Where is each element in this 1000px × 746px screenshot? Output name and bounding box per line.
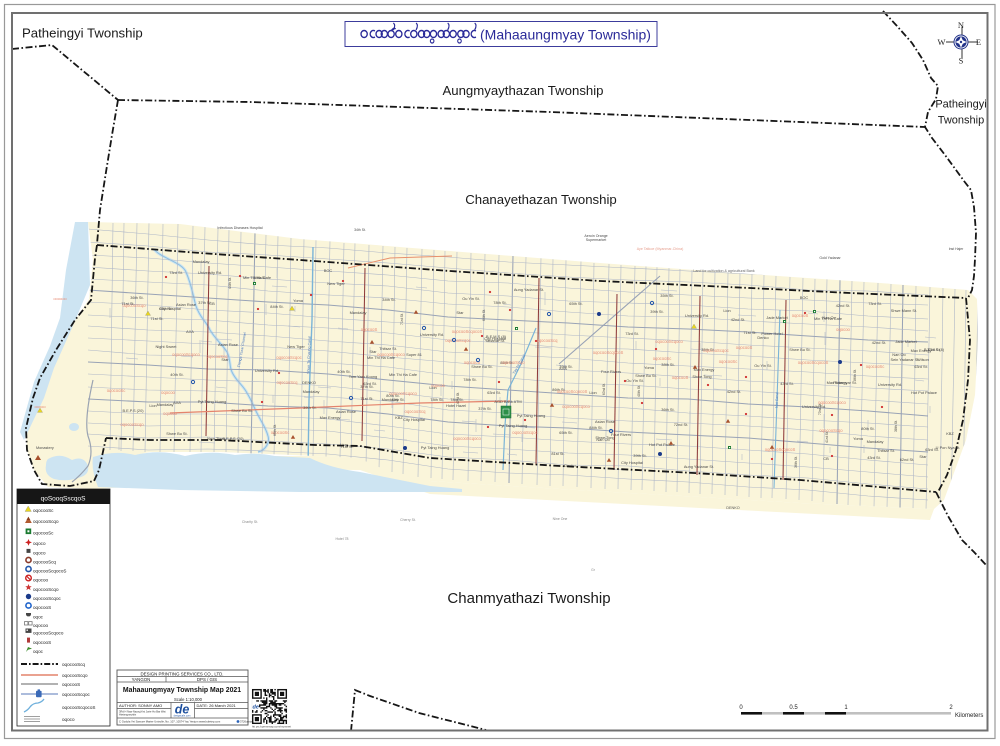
svg-text:63rd St.: 63rd St. — [487, 390, 501, 395]
svg-text:Chanayethazan Twonship: Chanayethazan Twonship — [465, 192, 617, 207]
svg-text:Supermarket: Supermarket — [586, 238, 607, 242]
svg-text:42nd St.: 42nd St. — [727, 389, 742, 394]
svg-text:oqocooS: oqocooS — [792, 313, 809, 318]
svg-text:44th St.: 44th St. — [391, 397, 404, 402]
svg-text:40th St.: 40th St. — [637, 385, 641, 397]
svg-text:oqoc: oqoc — [33, 649, 44, 654]
svg-text:65th St.: 65th St. — [273, 424, 277, 436]
svg-text:86th St.: 86th St. — [853, 369, 857, 381]
svg-text:oqocooScqo: oqocooScqo — [62, 673, 88, 678]
svg-text:80th St.: 80th St. — [861, 426, 874, 431]
svg-text:34th St.: 34th St. — [382, 297, 395, 302]
svg-text:Nine One: Nine One — [553, 517, 568, 521]
svg-text:DESIGN PRINTING SERVICES CO.,: DESIGN PRINTING SERVICES CO., LTD. — [140, 671, 223, 676]
svg-text:73rd St.: 73rd St. — [625, 331, 639, 336]
svg-text:New Tiger: New Tiger — [287, 344, 305, 349]
svg-text:DPS / GIS: DPS / GIS — [197, 677, 217, 682]
svg-text:63rd St.: 63rd St. — [914, 364, 928, 369]
svg-text:oqocooScqoco: oqocooScqoco — [172, 352, 200, 357]
svg-text:43rd St.: 43rd St. — [867, 455, 881, 460]
svg-text:Patheingyi: Patheingyi — [935, 99, 986, 111]
svg-text:BOC: BOC — [800, 295, 809, 300]
svg-text:36th St.: 36th St. — [661, 407, 674, 412]
svg-text:Asian Rose: Asian Rose — [336, 409, 356, 414]
svg-text:36th St.: 36th St. — [794, 456, 798, 468]
svg-text:62nd St.: 62nd St. — [900, 457, 915, 462]
svg-text:oqocooScqocoS: oqocooScqocoS — [33, 569, 66, 574]
svg-text:YANGON: YANGON — [132, 677, 151, 682]
svg-text:37th St.: 37th St. — [360, 384, 373, 389]
svg-text:oqocooSc: oqocooSc — [653, 356, 672, 361]
svg-text:Infectious Diseases Hospital: Infectious Diseases Hospital — [217, 226, 262, 230]
svg-text:Ou Yin St.: Ou Yin St. — [754, 363, 772, 368]
svg-text:oqocooScqocoS: oqocooScqocoS — [593, 350, 624, 355]
svg-text:Aung Yadanar St.: Aung Yadanar St. — [684, 464, 714, 469]
svg-text:Mandalay: Mandalay — [157, 402, 174, 407]
svg-text:Yoma: Yoma — [853, 436, 864, 441]
svg-text:DENKO: DENKO — [726, 506, 740, 510]
svg-text:E: E — [976, 37, 981, 47]
svg-text:University Rd.: University Rd. — [878, 382, 902, 387]
svg-text:Ou Yin St.: Ou Yin St. — [626, 378, 644, 383]
svg-text:University Rd.: University Rd. — [198, 270, 222, 275]
svg-text:Shwe Bu St.: Shwe Bu St. — [635, 373, 656, 378]
svg-text:Lion: Lion — [589, 390, 596, 395]
svg-text:designcafe.com: designcafe.com — [174, 715, 191, 718]
svg-text:Inst Hajer: Inst Hajer — [949, 247, 964, 251]
svg-text:qoSooqSscqoS: qoSooqSscqoS — [41, 496, 86, 503]
svg-text:oqocoo: oqocoo — [431, 383, 445, 388]
svg-text:University Rd.: University Rd. — [420, 332, 444, 337]
svg-text:Night Sweet: Night Sweet — [156, 344, 178, 349]
svg-text:oqocooSc: oqocooSc — [107, 388, 126, 393]
svg-text:71st St.: 71st St. — [360, 396, 373, 401]
svg-text:oqoc: oqoc — [33, 615, 44, 620]
svg-text:73rd St.: 73rd St. — [818, 403, 822, 415]
svg-text:DENKO: DENKO — [302, 380, 316, 385]
svg-text:oqocooScq: oqocooScq — [33, 560, 56, 565]
svg-text:Jade Market: Jade Market — [895, 339, 917, 344]
svg-text:AUTHOR: SONNY AMO: AUTHOR: SONNY AMO — [119, 703, 162, 708]
svg-text:73rd St.: 73rd St. — [169, 270, 183, 275]
svg-text:Mandalay: Mandalay — [193, 259, 210, 264]
svg-text:71st St.: 71st St. — [743, 330, 756, 335]
svg-text:42nd St.: 42nd St. — [872, 340, 887, 345]
svg-text:oqocooScqoc: oqocooScqoc — [33, 596, 62, 601]
svg-text:CB: CB — [823, 456, 829, 461]
svg-text:oqocooScqocoS: oqocooScqocoS — [557, 389, 588, 394]
svg-text:AGD Bank ATM: AGD Bank ATM — [494, 399, 521, 404]
svg-text:oqocooScqocoS: oqocooScqocoS — [765, 447, 796, 452]
svg-text:39th St.: 39th St. — [633, 453, 646, 458]
svg-text:40th St.: 40th St. — [337, 369, 350, 374]
svg-text:Shwe Mann St.: Shwe Mann St. — [891, 308, 917, 313]
svg-text:Yoma: Yoma — [293, 298, 304, 303]
svg-text:Tom Yam Koong: Tom Yam Koong — [349, 374, 377, 379]
svg-text:oqocooScq: oqocooScq — [207, 354, 229, 359]
svg-text:78th St.: 78th St. — [430, 397, 443, 402]
svg-text:Max Energy: Max Energy — [320, 415, 341, 420]
svg-text:oqocooScqo: oqocooScqo — [33, 519, 59, 524]
svg-text:oqocooSc: oqocooSc — [719, 359, 738, 364]
svg-text:oqocooScqoco: oqocooScqoco — [453, 436, 481, 441]
svg-text:oqocooScq: oqocooScq — [405, 409, 427, 414]
svg-text:ooooo: ooooo — [34, 404, 46, 409]
svg-text:43rd St.: 43rd St. — [456, 392, 460, 404]
svg-text:oqocooScqoco: oqocooScqoco — [818, 400, 846, 405]
svg-text:37th St.: 37th St. — [478, 406, 491, 411]
svg-text:78th St.: 78th St. — [463, 377, 476, 382]
svg-text:Star: Star — [456, 310, 464, 315]
svg-text:oqocooSc: oqocooSc — [33, 508, 54, 513]
svg-text:63rd St.: 63rd St. — [602, 383, 606, 395]
svg-text:University Rd.: University Rd. — [685, 313, 709, 318]
svg-text:Aungmyaythazan Twonship: Aungmyaythazan Twonship — [442, 83, 603, 98]
svg-text:Thitsar St.: Thitsar St. — [379, 346, 397, 351]
svg-text:71st St.: 71st St. — [150, 316, 163, 321]
svg-text:64th St.: 64th St. — [482, 309, 486, 321]
svg-text:University Rd.: University Rd. — [255, 368, 279, 373]
svg-text:htt ps./opensmap.com/mymmet: htt ps./opensmap.com/mymmet — [252, 724, 291, 728]
svg-text:38th St.: 38th St. — [661, 362, 674, 367]
svg-text:AXA: AXA — [186, 329, 194, 334]
svg-text:Patheingyi Twonship: Patheingyi Twonship — [22, 26, 143, 41]
svg-text:AXA: AXA — [173, 400, 181, 405]
svg-text:Shwe Bu St.: Shwe Bu St. — [789, 347, 810, 352]
svg-text:44th St.: 44th St. — [228, 277, 232, 289]
svg-text:DATE: 26 March 2021: DATE: 26 March 2021 — [197, 703, 237, 708]
svg-text:oqocooScqoc: oqocooScqoc — [703, 348, 728, 353]
svg-text:Yoma: Yoma — [644, 365, 655, 370]
svg-text:oqoco: oqoco — [33, 541, 46, 546]
svg-text:oqocooS: oqocooS — [672, 375, 689, 380]
svg-text:oqocoo: oqocoo — [163, 411, 177, 416]
svg-text:B.E.M.S (8): B.E.M.S (8) — [924, 347, 945, 352]
svg-text:oqocooSc: oqocooSc — [866, 364, 885, 369]
svg-text:Cherry St.: Cherry St. — [400, 518, 416, 522]
svg-text:65th St.: 65th St. — [569, 301, 582, 306]
svg-text:Four Rivers: Four Rivers — [601, 369, 621, 374]
svg-text:43rd St.: 43rd St. — [780, 381, 794, 386]
svg-text:Star: Star — [919, 454, 927, 459]
svg-text:40th St.: 40th St. — [170, 372, 183, 377]
svg-text:oqocooScqoc: oqocooScqoc — [276, 355, 301, 360]
svg-text:Twonship: Twonship — [938, 115, 984, 127]
svg-text:Mahaaungmyay Township Map 2021: Mahaaungmyay Township Map 2021 — [123, 687, 241, 694]
svg-text:oqocooScqoc: oqocooScqoc — [445, 338, 470, 343]
svg-text:Kilometers: Kilometers — [955, 713, 983, 719]
svg-text:oqocooScqoco: oqocooScqoco — [562, 404, 590, 409]
svg-text:oqocooScqoco: oqocooScqoco — [389, 391, 417, 396]
svg-text:42nd St.: 42nd St. — [731, 317, 746, 322]
svg-text:oqocooScqocoS: oqocooScqocoS — [452, 329, 483, 334]
svg-text:34th St.: 34th St. — [354, 228, 366, 232]
svg-text:City Hospital: City Hospital — [403, 417, 425, 422]
svg-text:oqocooScq: oqocooScq — [62, 662, 85, 667]
svg-text:Scale 1:10,000: Scale 1:10,000 — [174, 697, 203, 702]
svg-text:65th St.: 65th St. — [559, 430, 572, 435]
svg-text:oqocoo: oqocoo — [836, 327, 850, 332]
svg-text:Shwe Tong: Shwe Tong — [692, 374, 711, 379]
svg-text:oqocooScqoco: oqocooScqoco — [33, 631, 64, 636]
svg-text:Pyt Taing Huang: Pyt Taing Huang — [499, 423, 527, 428]
svg-text:oqocooS: oqocooS — [361, 327, 378, 332]
svg-text:Mandalay: Mandalay — [303, 389, 320, 394]
svg-text:C Godula Yet Samure Marter Un: C Godula Yet Samure Marter Univolle, No.… — [119, 720, 221, 724]
svg-text:Super 81: Super 81 — [406, 352, 422, 357]
svg-text:Power Hotel: Power Hotel — [761, 331, 782, 336]
svg-text:oqocooScqoco: oqocooScqoco — [655, 339, 683, 344]
svg-text:Pyt Taing Huang: Pyt Taing Huang — [421, 445, 449, 450]
svg-text:63rd St.: 63rd St. — [925, 447, 939, 452]
svg-text:Lion: Lion — [723, 308, 730, 313]
svg-text:oqocooScqo: oqocooScqo — [122, 303, 146, 308]
svg-text:oqocooScqo: oqocooScqo — [120, 422, 144, 427]
svg-text:39th St.: 39th St. — [303, 405, 316, 410]
svg-text:oqocooScqocoS: oqocooScqocoS — [798, 360, 829, 365]
svg-text:Gold Yadanar: Gold Yadanar — [819, 256, 841, 260]
svg-text:Nan Oo: Nan Oo — [822, 315, 835, 320]
svg-text:78th St.: 78th St. — [493, 300, 506, 305]
svg-text:84th St.: 84th St. — [589, 425, 602, 430]
svg-text:(Mahaaungmyay Township): (Mahaaungmyay Township) — [480, 27, 651, 43]
svg-text:oqocooSc: oqocooSc — [33, 531, 54, 536]
svg-text:oqocoo: oqocoo — [161, 390, 175, 395]
svg-text:oqocooS: oqocooS — [736, 345, 753, 350]
svg-text:Aung Yadanar St.: Aung Yadanar St. — [514, 287, 544, 292]
svg-text:Min Thi Ha Cafe: Min Thi Ha Cafe — [389, 372, 417, 377]
svg-text:oooooo: oooooo — [53, 296, 67, 301]
svg-text:Charity St.: Charity St. — [242, 520, 258, 524]
svg-text:Aye Tatkoe (Myanmar-China): Aye Tatkoe (Myanmar-China) — [637, 247, 684, 251]
svg-text:oqocooScqoc: oqocooScqoc — [62, 692, 91, 697]
svg-text:Pyt Taing Huang: Pyt Taing Huang — [517, 413, 545, 418]
svg-text:35th St.: 35th St. — [660, 293, 673, 298]
svg-text:72nd St.: 72nd St. — [674, 422, 689, 427]
svg-text:Lion: Lion — [149, 403, 156, 408]
svg-text:oqocooScqocoS: oqocooScqocoS — [62, 705, 95, 710]
svg-text:oqocooScq: oqocooScq — [277, 380, 299, 385]
svg-text:oqocooS: oqocooS — [464, 360, 481, 365]
svg-text:City Hospital: City Hospital — [159, 306, 181, 311]
svg-text:73rd St.: 73rd St. — [868, 301, 882, 306]
svg-text:81st St.: 81st St. — [551, 451, 564, 456]
svg-text:B.E.P.S (20): B.E.P.S (20) — [122, 408, 144, 413]
svg-text:KBZ: KBZ — [946, 431, 954, 436]
svg-text:38th St.: 38th St. — [894, 420, 898, 432]
svg-text:Land for cultivation & agricul: Land for cultivation & agricultural Bank — [693, 269, 755, 273]
svg-text:36th St.: 36th St. — [130, 295, 143, 300]
svg-text:Thitsar St.: Thitsar St. — [877, 448, 895, 453]
svg-text:oqocoo: oqocoo — [33, 578, 49, 583]
svg-text:oqocooScqoco: oqocooScqoco — [377, 352, 405, 357]
svg-text:de: de — [253, 705, 259, 711]
svg-text:W: W — [937, 37, 945, 47]
svg-text:City Hospital: City Hospital — [621, 460, 643, 465]
svg-text:71st St.: 71st St. — [400, 313, 404, 325]
svg-text:CB: CB — [209, 301, 215, 306]
svg-text:41st St.: 41st St. — [825, 431, 829, 443]
svg-text:oqoco: oqoco — [62, 717, 75, 722]
svg-text:BOC: BOC — [324, 268, 333, 273]
svg-text:Asian Rose: Asian Rose — [595, 419, 615, 424]
svg-text:AXA: AXA — [559, 366, 567, 371]
svg-text:oqoco: oqoco — [33, 551, 46, 556]
svg-text:oqocooScqoc: oqocooScqoc — [512, 430, 537, 435]
svg-text:84th St.: 84th St. — [270, 304, 283, 309]
svg-text:Nat Canal: Nat Canal — [775, 392, 780, 408]
svg-text:oqocooS: oqocooS — [33, 605, 51, 610]
svg-text:oqocooScqo: oqocooScqo — [33, 587, 59, 592]
svg-text:B.E.M.S (8): B.E.M.S (8) — [486, 334, 507, 339]
svg-text:Mandalay: Mandalay — [350, 310, 367, 315]
svg-text:Nan Oo: Nan Oo — [892, 352, 905, 357]
svg-text:oqocooS: oqocooS — [62, 682, 80, 687]
svg-text:Monastery: Monastery — [36, 446, 54, 450]
svg-text:Pyt Taing Huang: Pyt Taing Huang — [198, 399, 226, 404]
svg-text:Shwe Bu St.: Shwe Bu St. — [166, 431, 187, 436]
svg-text:Sein Yadanar St.: Sein Yadanar St. — [890, 357, 919, 362]
svg-text:Asian Rose: Asian Rose — [218, 342, 238, 347]
svg-text:Jade Market: Jade Market — [766, 315, 788, 320]
svg-text:oqocooScq: oqocooScq — [537, 338, 559, 343]
svg-text:Min Thi Ha Cafe: Min Thi Ha Cafe — [243, 275, 271, 280]
svg-text:Htetsngmszbin: Htetsngmszbin — [119, 713, 137, 717]
svg-text:Hot Pot Palace: Hot Pot Palace — [911, 390, 937, 395]
svg-text:39th St.: 39th St. — [650, 309, 663, 314]
svg-text:oqocooScqo: oqocooScqo — [819, 428, 843, 433]
svg-text:oqocoo: oqocoo — [33, 623, 49, 628]
svg-text:Max Energy: Max Energy — [694, 367, 715, 372]
svg-text:Shwe Bu St.: Shwe Bu St. — [231, 408, 252, 413]
svg-text:0.5: 0.5 — [789, 705, 798, 711]
svg-text:Shwe Tong: Shwe Tong — [595, 435, 614, 440]
svg-text:Chanmyathazi Twonship: Chanmyathazi Twonship — [447, 590, 610, 607]
svg-text:Ou Yin St.: Ou Yin St. — [462, 296, 480, 301]
svg-text:Hotel 78: Hotel 78 — [335, 537, 348, 541]
svg-text:42nd St.: 42nd St. — [836, 303, 851, 308]
svg-text:Star: Star — [369, 349, 377, 354]
svg-text:Mandalay: Mandalay — [867, 439, 884, 444]
svg-text:N: N — [958, 20, 964, 30]
svg-text:S: S — [959, 56, 964, 66]
svg-text:oqocooS: oqocooS — [33, 640, 51, 645]
